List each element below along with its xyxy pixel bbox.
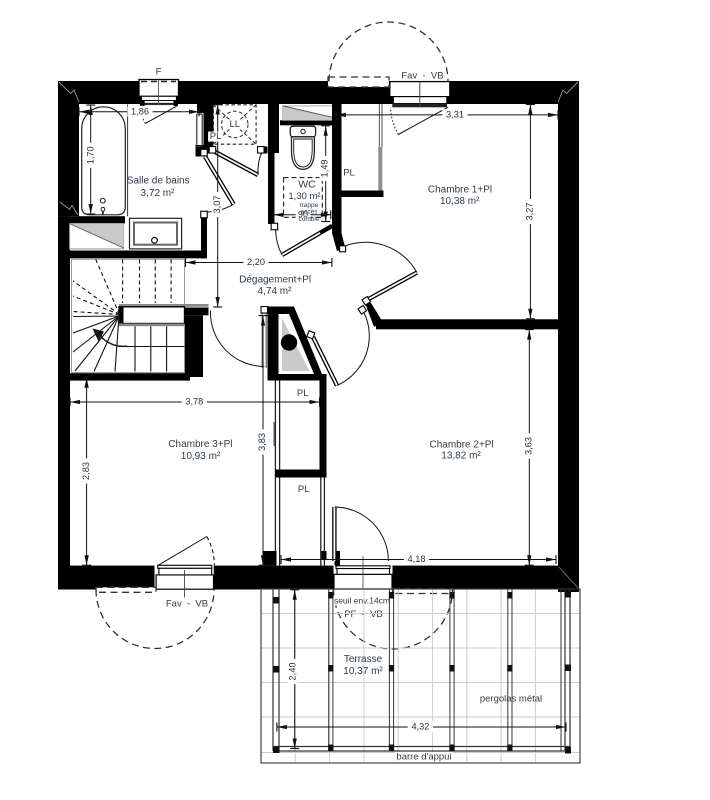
- svg-text:barre d'appui: barre d'appui: [396, 752, 451, 763]
- svg-text:LL: LL: [230, 119, 241, 130]
- svg-text:10,37 m²: 10,37 m²: [343, 666, 383, 677]
- svg-text:3,27: 3,27: [524, 203, 534, 221]
- svg-text:1,70: 1,70: [86, 146, 96, 164]
- svg-text:10,38 m²: 10,38 m²: [440, 196, 480, 207]
- svg-text:1,49: 1,49: [320, 160, 330, 178]
- svg-text:PL: PL: [298, 484, 310, 495]
- svg-text:PL: PL: [343, 168, 355, 179]
- svg-text:accès: accès: [301, 209, 319, 216]
- svg-text:Fav - VB: Fav - VB: [166, 599, 208, 610]
- svg-text:3,31: 3,31: [446, 110, 464, 120]
- svg-text:3,63: 3,63: [523, 437, 533, 455]
- svg-text:Chambre 1+Pl: Chambre 1+Pl: [428, 184, 492, 195]
- svg-text:Salle de bains: Salle de bains: [127, 175, 190, 186]
- svg-text:Terrasse: Terrasse: [344, 654, 383, 665]
- svg-text:2,83: 2,83: [81, 462, 91, 480]
- svg-text:PL: PL: [297, 388, 309, 399]
- svg-text:10,93 m²: 10,93 m²: [181, 451, 221, 462]
- svg-text:4,74 m²: 4,74 m²: [258, 286, 293, 297]
- svg-text:comble: comble: [299, 216, 320, 223]
- svg-text:Fav - VB: Fav - VB: [401, 71, 443, 82]
- svg-text:2,20: 2,20: [247, 257, 265, 267]
- svg-text:Chambre 3+Pl: Chambre 3+Pl: [168, 439, 232, 450]
- svg-text:pergolas métal: pergolas métal: [480, 694, 542, 705]
- svg-text:F: F: [156, 67, 162, 78]
- svg-text:3,78: 3,78: [185, 397, 203, 407]
- svg-text:PL: PL: [210, 131, 222, 142]
- svg-text:2,40: 2,40: [288, 663, 298, 681]
- svg-text:Dégagement+Pl: Dégagement+Pl: [239, 274, 311, 285]
- svg-text:WC: WC: [298, 179, 316, 191]
- svg-text:3,07: 3,07: [212, 196, 222, 214]
- svg-text:Chambre 2+Pl: Chambre 2+Pl: [429, 440, 493, 451]
- svg-text:1,30 m²: 1,30 m²: [288, 191, 320, 202]
- svg-text:4,32: 4,32: [411, 722, 429, 732]
- svg-text:3,83: 3,83: [257, 433, 267, 451]
- svg-text:4,18: 4,18: [408, 554, 426, 564]
- svg-text:1,86: 1,86: [131, 107, 149, 117]
- svg-text:seuil env.14cm: seuil env.14cm: [334, 596, 390, 606]
- svg-text:3,72 m²: 3,72 m²: [141, 188, 176, 199]
- svg-text:13,82 m²: 13,82 m²: [441, 451, 481, 462]
